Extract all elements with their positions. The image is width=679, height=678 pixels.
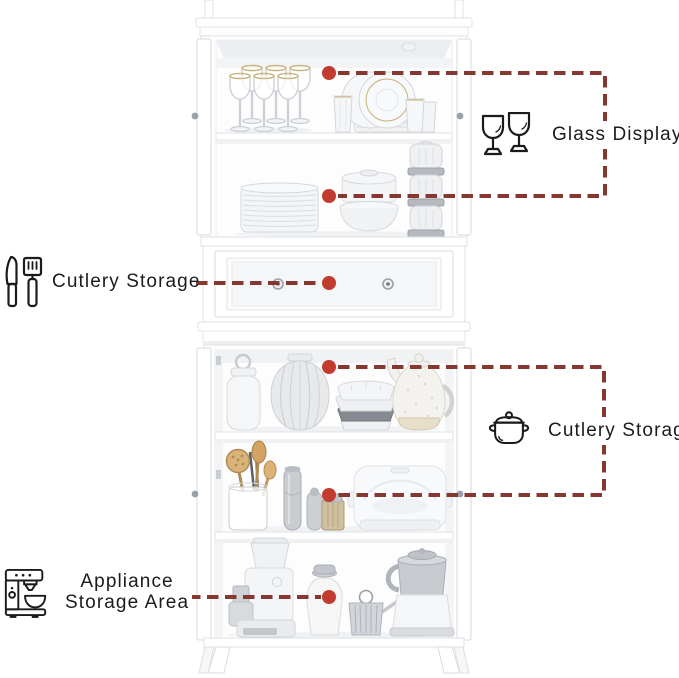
marker-dot-middle-shelf [322, 360, 336, 374]
cutlery-cabinet-label: Cutlery Storage [544, 417, 679, 445]
annotation-cutlery-cabinet: Cutlery Storage [484, 408, 679, 454]
espresso-machine-icon [2, 566, 50, 618]
glass-display-label: Glass Display [548, 121, 679, 149]
knife-spatula-icon [2, 255, 44, 309]
product-feature-diagram: Glass Display Cutlery Storage Cutlery St… [0, 0, 679, 678]
wine-glasses-icon [481, 112, 533, 158]
appliance-area-label: Appliance Storage Area [62, 570, 192, 614]
cooking-pot-icon [484, 408, 534, 454]
marker-dot-lower-shelf [322, 488, 336, 502]
marker-dot-appliance [322, 590, 336, 604]
annotation-cutlery-drawer: Cutlery Storage [2, 255, 201, 309]
annotation-appliance-area: Appliance Storage Area [2, 566, 192, 618]
annotation-glass-display: Glass Display [481, 112, 679, 158]
appliance-label-line2: Storage Area [65, 592, 189, 613]
marker-dot-glass-top [322, 66, 336, 80]
cutlery-drawer-label: Cutlery Storage [52, 271, 201, 293]
appliance-label-line1: Appliance [80, 571, 173, 592]
marker-dot-drawer [322, 276, 336, 290]
marker-dot-glass-bottom [322, 189, 336, 203]
